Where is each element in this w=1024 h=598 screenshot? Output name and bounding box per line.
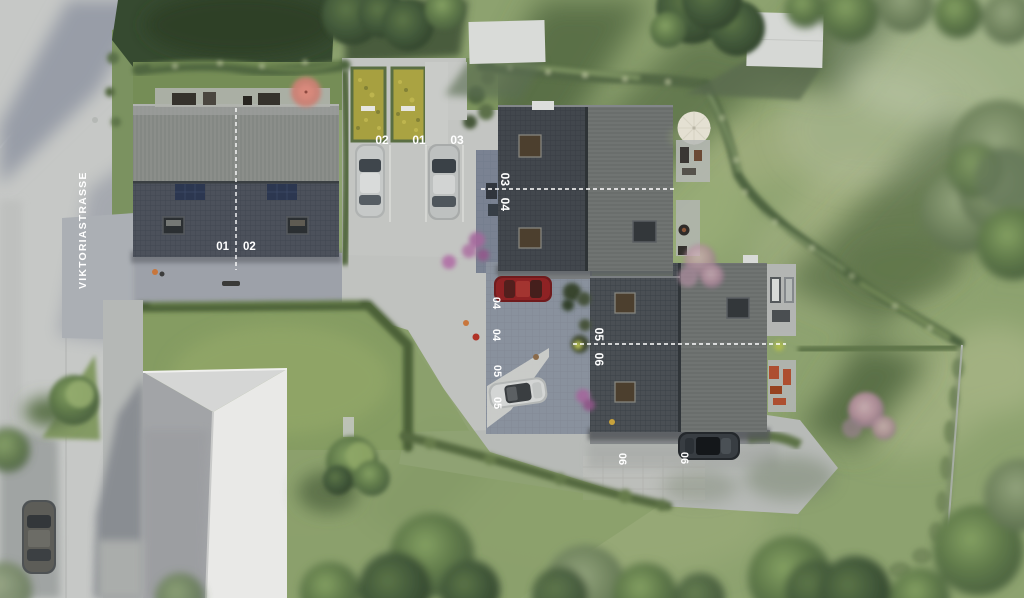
- svg-text:04: 04: [490, 297, 502, 310]
- svg-text:01: 01: [412, 133, 426, 147]
- svg-text:05: 05: [491, 397, 503, 409]
- svg-text:03: 03: [450, 133, 464, 147]
- svg-text:02: 02: [375, 133, 389, 147]
- svg-text:VIKTORIASTRASSE: VIKTORIASTRASSE: [77, 171, 89, 289]
- svg-text:01: 01: [216, 241, 229, 253]
- svg-text:03: 03: [498, 173, 512, 187]
- svg-text:05: 05: [491, 365, 503, 377]
- svg-text:04: 04: [498, 198, 512, 212]
- svg-text:06: 06: [616, 453, 628, 465]
- svg-text:05: 05: [592, 328, 606, 342]
- svg-text:06: 06: [592, 353, 606, 367]
- svg-text:06: 06: [678, 452, 690, 464]
- svg-text:04: 04: [490, 329, 502, 342]
- svg-text:02: 02: [243, 241, 256, 253]
